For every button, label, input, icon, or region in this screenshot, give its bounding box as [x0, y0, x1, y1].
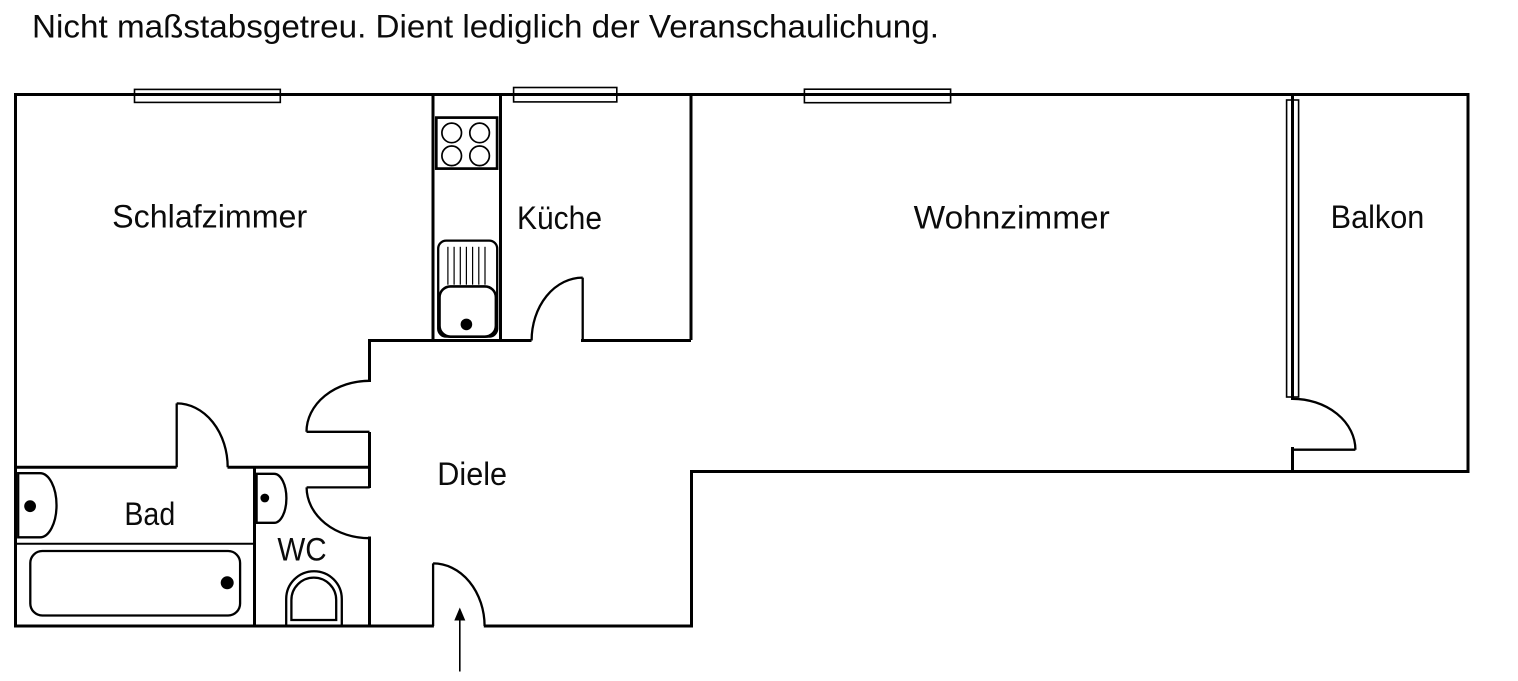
svg-text:Nicht maßstabsgetreu. Dient le: Nicht maßstabsgetreu. Dient lediglich de…	[32, 9, 939, 45]
svg-text:Küche: Küche	[517, 200, 602, 236]
svg-text:WC: WC	[277, 532, 326, 568]
svg-text:Wohnzimmer: Wohnzimmer	[914, 200, 1110, 236]
svg-text:Bad: Bad	[124, 496, 175, 532]
svg-text:Balkon: Balkon	[1331, 199, 1425, 235]
svg-text:Diele: Diele	[437, 456, 507, 492]
svg-text:Schlafzimmer: Schlafzimmer	[112, 199, 307, 235]
